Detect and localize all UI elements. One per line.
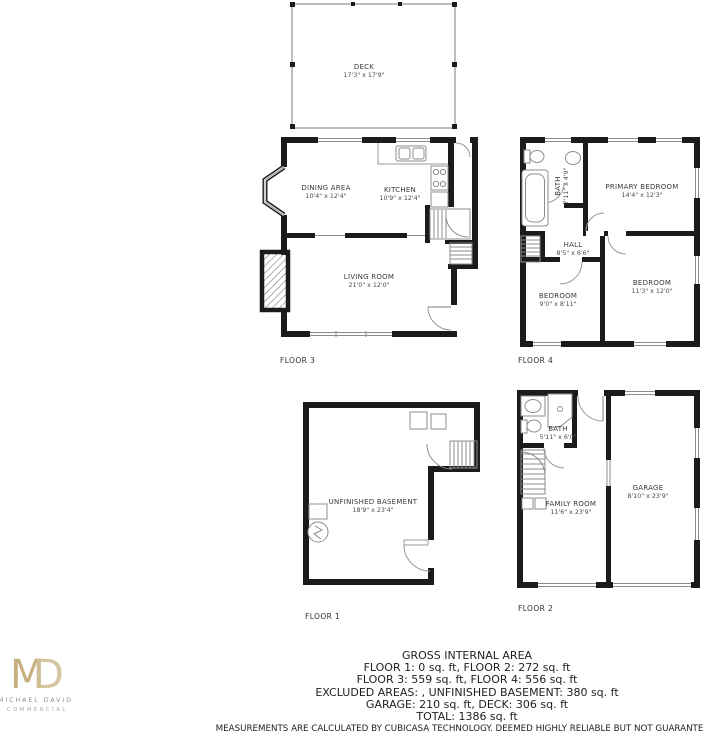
room-label-unfinished-basement: UNFINISHED BASEMENT 18'9" x 23'4" — [329, 498, 418, 514]
room-label-living-room: LIVING ROOM 21'0" x 12'0" — [344, 273, 394, 289]
michael-david-logo: M D MICHAEL DAVID COMMERCIAL — [0, 664, 100, 726]
floor-label-4: FLOOR 4 — [518, 356, 553, 365]
summary-line: EXCLUDED AREAS: , UNFINISHED BASEMENT: 3… — [214, 687, 704, 699]
door-arc — [428, 307, 451, 330]
stairs-icon — [521, 450, 545, 494]
room-label-kitchen: KITCHEN 10'9" x 12'4" — [379, 186, 420, 202]
sink-icon — [396, 146, 426, 161]
bay-window — [265, 167, 284, 215]
room-label-bedroom-large: BEDROOM 11'3" x 12'0" — [631, 279, 672, 295]
floor4-plan — [520, 137, 700, 347]
fridge-icon — [431, 192, 448, 207]
summary-line: FLOOR 3: 559 sq. ft, FLOOR 4: 556 sq. ft — [214, 674, 704, 686]
logo-company-name: MICHAEL DAVID — [0, 697, 73, 704]
floor-label-3: FLOOR 3 — [280, 356, 315, 365]
room-label-dining-area: DINING AREA 10'4" x 12'4" — [301, 184, 350, 200]
floor4-walls — [520, 137, 700, 347]
floor-label-1: FLOOR 1 — [305, 612, 340, 621]
room-label-bedroom-small: BEDROOM 9'0" x 8'11" — [539, 292, 577, 308]
stairs-upper-icon — [430, 209, 470, 239]
living-door-opening — [451, 305, 457, 331]
floor1-walls — [306, 405, 477, 582]
room-label-bath-floor4: BATH 7'11" x 4'9" — [554, 167, 570, 204]
room-label-hall: HALL 8'5" x 6'6" — [556, 241, 589, 257]
sink-icon — [566, 152, 581, 165]
floor3-plan — [262, 137, 478, 337]
washer-dryer-icon — [522, 498, 546, 509]
door-arc — [456, 143, 470, 157]
floor1-plan — [306, 405, 477, 582]
room-label-deck: DECK 17'3" x 17'9" — [343, 63, 384, 79]
vanity-sink-icon — [521, 396, 545, 416]
toilet-icon — [521, 420, 541, 433]
room-label-primary-bedroom: PRIMARY BEDROOM 14'4" x 12'3" — [605, 183, 678, 199]
floor2-plan — [517, 390, 700, 588]
toilet-icon — [524, 150, 544, 163]
floor-label-2: FLOOR 2 — [518, 604, 553, 613]
logo-division-name: COMMERCIAL — [7, 707, 68, 713]
stove-icon — [431, 166, 448, 190]
side-door-opening — [456, 137, 470, 143]
shower-icon — [548, 394, 572, 427]
room-label-family-room: FAMILY ROOM 11'6" x 23'9" — [546, 500, 596, 516]
stairs-lower-icon — [450, 243, 472, 264]
logo-letter-d: D — [33, 660, 64, 690]
summary-line: TOTAL: 1386 sq. ft — [214, 711, 704, 723]
room-label-garage: GARAGE 8'10" x 23'9" — [627, 484, 668, 500]
floorplan-drawing — [0, 0, 704, 731]
floorplan-page: DECK 17'3" x 17'9" DINING AREA 10'4" x 1… — [0, 0, 704, 731]
fireplace-icon — [262, 252, 288, 310]
water-heater-icon — [308, 522, 328, 542]
summary-disclaimer: MEASUREMENTS ARE CALCULATED BY CUBICASA … — [214, 724, 704, 731]
bathtub-icon — [522, 170, 548, 226]
area-summary: GROSS INTERNAL AREA FLOOR 1: 0 sq. ft, F… — [214, 650, 704, 731]
room-label-bath-floor2: BATH 5'11" x 6'0" — [539, 425, 576, 441]
